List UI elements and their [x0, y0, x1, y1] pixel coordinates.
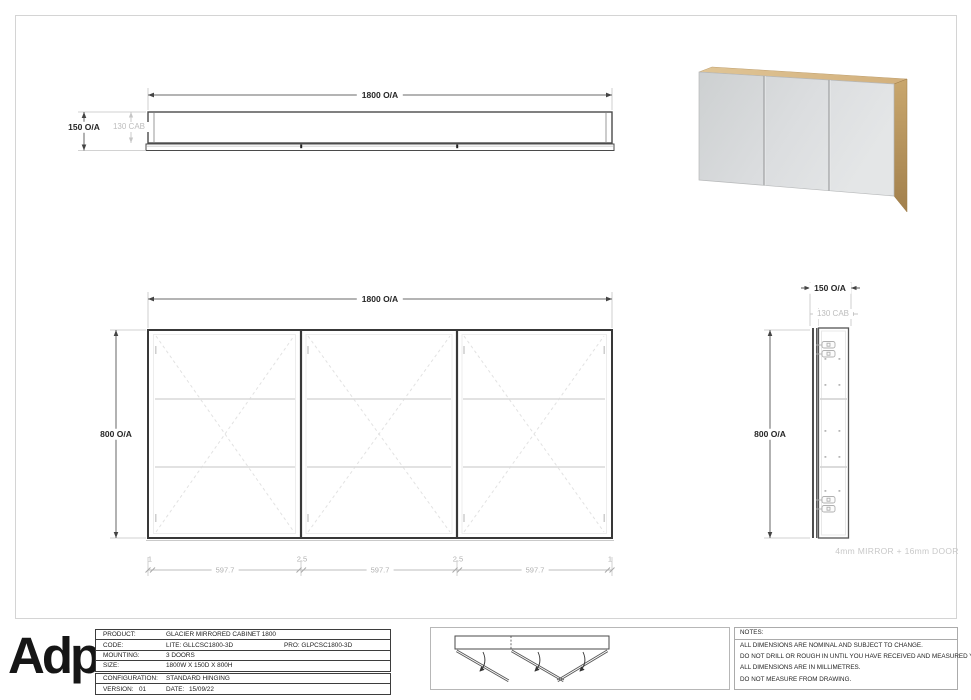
note-line: DO NOT MEASURE FROM DRAWING. [735, 674, 957, 685]
front-dim-gap2: 2.5 [453, 555, 463, 563]
front-dim-gap-left: 1 [148, 555, 152, 563]
front-view-width-dim: 1800 O/A [357, 294, 403, 305]
row-code: CODE: LITE: GLLCSC1800-3D PRO: GLPCSC180… [96, 639, 390, 649]
row-configuration: CONFIGURATION: STANDARD HINGING [96, 674, 390, 683]
date-value: 15/09/22 [189, 686, 390, 693]
version-label: VERSION: [96, 686, 139, 693]
front-dim-door3: 597.7 [522, 566, 549, 574]
code-lite-value: LITE: GLLCSC1800-3D [166, 642, 284, 649]
configuration-label: CONFIGURATION: [96, 675, 166, 682]
title-block-upper: PRODUCT: GLACIER MIRRORED CABINET 1800 C… [95, 629, 391, 672]
version-value: 01 [139, 686, 166, 693]
front-dim-door2: 597.7 [367, 566, 394, 574]
adp-logo: Adp [8, 624, 94, 690]
row-product: PRODUCT: GLACIER MIRRORED CABINET 1800 [96, 630, 390, 639]
side-view [764, 282, 860, 538]
note-line: DO NOT DRILL OR ROUGH IN UNTIL YOU HAVE … [735, 651, 957, 662]
product-value: GLACIER MIRRORED CABINET 1800 [166, 631, 390, 638]
row-mounting: MOUNTING: 3 DOORS [96, 650, 390, 660]
note-line: ALL DIMENSIONS ARE IN MILLIMETRES. [735, 662, 957, 673]
door-swing-diagram-box [430, 627, 730, 690]
cabinet-3d-render [672, 52, 932, 237]
door-swing-diagram [431, 628, 729, 689]
mounting-label: MOUNTING: [96, 652, 166, 659]
front-view-height-dim: 800 O/A [95, 429, 137, 440]
side-view-depth-dim: 150 O/A [809, 283, 851, 294]
top-view [78, 88, 614, 151]
title-block-table: PRODUCT: GLACIER MIRRORED CABINET 1800 C… [95, 629, 391, 695]
front-dim-door1: 597.7 [212, 566, 239, 574]
mounting-value: 3 DOORS [166, 652, 390, 659]
code-label: CODE: [96, 642, 166, 649]
note-line: ALL DIMENSIONS ARE NOMINAL AND SUBJECT T… [735, 640, 957, 651]
side-view-cab-dim: 130 CAB [813, 309, 853, 319]
front-dim-gap1: 2.5 [297, 555, 307, 563]
front-view [110, 292, 615, 576]
top-view-depth-dim: 150 O/A [63, 122, 105, 133]
top-view-cab-dim: 130 CAB [109, 122, 149, 132]
configuration-value: STANDARD HINGING [166, 675, 390, 682]
size-value: 1800W X 150D X 800H [166, 662, 390, 669]
code-pro-value: PRO: GLPCSC1800-3D [284, 642, 390, 649]
row-size: SIZE: 1800W X 150D X 800H [96, 660, 390, 670]
top-view-width-dim: 1800 O/A [357, 90, 403, 101]
notes-title: NOTES: [735, 628, 957, 640]
product-label: PRODUCT: [96, 631, 166, 638]
front-dim-gap-right: 1 [608, 555, 612, 563]
notes-box: NOTES: ALL DIMENSIONS ARE NOMINAL AND SU… [734, 627, 958, 690]
date-label: DATE: [166, 686, 189, 693]
row-version: VERSION: 01 DATE: 15/09/22 [96, 683, 390, 693]
construction-caption: 4mm MIRROR + 16mm DOOR [835, 546, 958, 556]
drawing-sheet: 1800 O/A 150 O/A 130 CAB 1800 O/A 800 O/… [0, 0, 971, 700]
size-label: SIZE: [96, 662, 166, 669]
title-block-lower: CONFIGURATION: STANDARD HINGING VERSION:… [95, 673, 391, 695]
side-view-height-dim: 800 O/A [749, 429, 791, 440]
